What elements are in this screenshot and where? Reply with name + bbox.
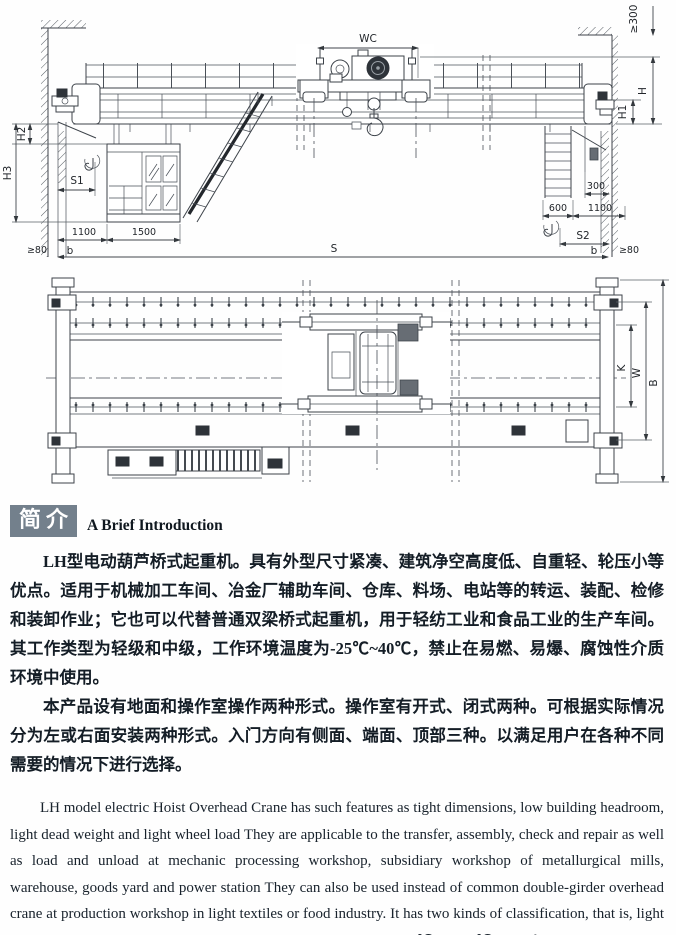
dim-label-w: W [631,367,643,378]
dim-label-1500: 1500 [132,227,156,238]
building-right-wall [578,27,618,257]
chinese-paragraph-2: 本产品设有地面和操作室操作两种形式。操作室有开式、闭式两种。可根据实际情况分为左… [10,692,664,779]
english-block: LH model electric Hoist Overhead Crane h… [10,795,664,935]
dim-label-k: K [616,363,628,371]
dim-label-1100-right: 1100 [588,203,612,214]
dim-top-clearance: ≥300 [628,5,653,35]
dim-label-300: 300 [587,181,605,192]
plan-trolley [280,300,452,470]
hook-symbol-left [85,155,100,170]
dim-label-600: 600 [549,203,567,214]
plan-cabin [108,447,289,478]
plan-view: K W B [46,278,669,483]
dim-label-h2: H2 [16,127,28,142]
dim-label-min80-right: ≥80 [619,245,639,256]
end-truck-left [48,278,76,483]
dim-span-s: S ≥80 b b ≥80 [27,243,639,257]
english-paragraph-1: LH model electric Hoist Overhead Crane h… [10,795,664,935]
dim-label-1100-left: 1100 [72,227,96,238]
dim-1100-1500: 1100 1500 [58,224,180,244]
operator-cabin [107,124,180,222]
dim-label-wc: WC [359,33,377,45]
crane-technical-drawing: WC ≥300 H H1 300 [0,0,676,497]
dim-label-b-left: b [67,245,74,257]
dim-label-s: S [331,243,338,255]
dim-label-b: B [648,379,660,386]
dim-label-min300: ≥300 [628,5,640,34]
front-elevation-view: WC ≥300 H H1 300 [2,5,662,257]
hook-symbol-right [544,221,559,236]
dim-label-h: H [637,87,649,95]
section-header: 简介 A Brief Introduction [10,505,664,537]
dim-label-s2: S2 [576,230,589,242]
dim-label-h1: H1 [617,105,629,120]
dim-k-w-b: K W B [616,280,669,482]
dim-label-b-right: b [591,245,598,257]
end-truck-right [594,278,622,483]
section-badge-cn: 简介 [10,505,77,537]
dim-label-s1: S1 [70,175,83,187]
chinese-paragraph-1: LH型电动葫芦桥式起重机。具有外型尺寸紧凑、建筑净空高度低、自重轻、轮压小等优点… [10,547,664,692]
section-title-en: A Brief Introduction [87,517,223,537]
introduction-section: 简介 A Brief Introduction LH型电动葫芦桥式起重机。具有外… [0,497,676,935]
dim-label-min80-left: ≥80 [27,245,47,256]
building-left-wall [41,20,86,257]
dim-label-h3: H3 [2,166,14,181]
catalog-page: WC ≥300 H H1 300 [0,0,676,935]
dim-h2-h3: H2 H3 [2,124,107,222]
